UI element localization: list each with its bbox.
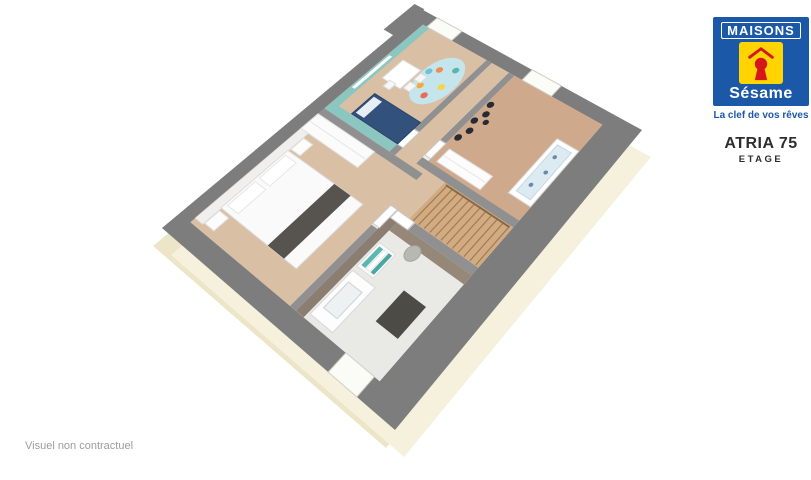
logo-tagline: La clef de vos rêves [705, 110, 811, 121]
brand-block: MAISONS Sésame La clef de vos rêves ATRI… [705, 17, 811, 165]
maisons-sesame-logo: MAISONS Sésame [713, 17, 809, 106]
logo-maisons-text: MAISONS [721, 22, 801, 39]
keyhole-icon [739, 42, 783, 84]
logo-sesame-text: Sésame [729, 86, 793, 102]
model-name: ATRIA 75 [705, 135, 811, 153]
model-level: ETAGE [705, 154, 811, 165]
keyhole-roof-icon [741, 44, 781, 82]
disclaimer-text: Visuel non contractuel [25, 440, 133, 452]
floorplan-3d-view [0, 0, 811, 480]
